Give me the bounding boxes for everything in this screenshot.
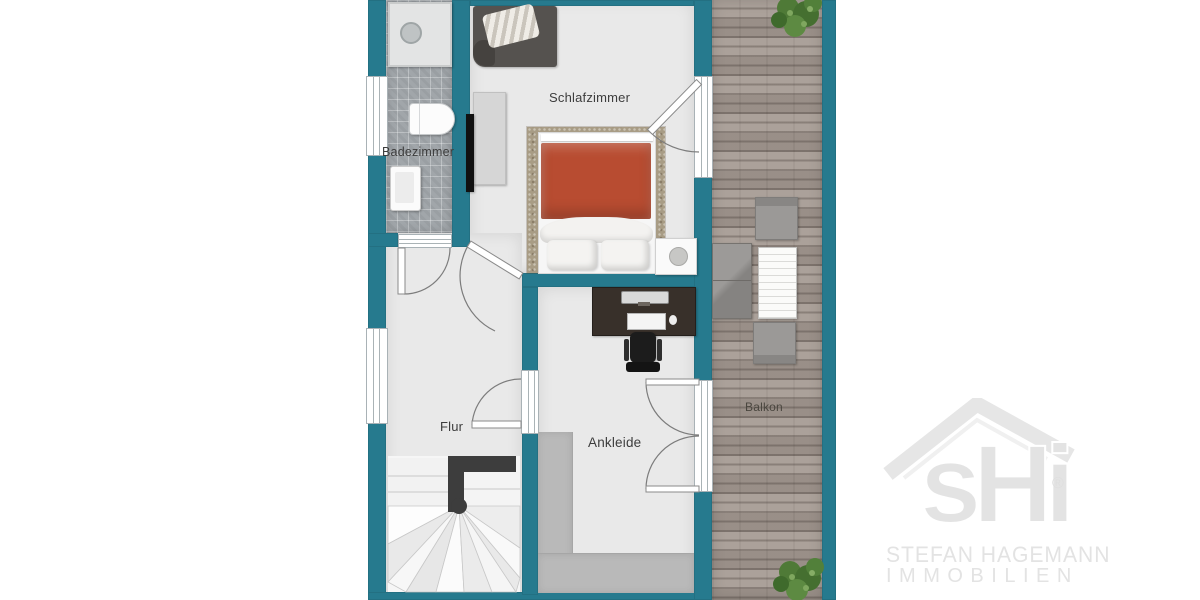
balcony-bench-seam — [713, 280, 751, 281]
window-bathroom — [366, 76, 388, 156]
office-chair-arm-right — [657, 339, 662, 361]
bed-pillow-right — [601, 240, 649, 270]
bed-headboard — [541, 134, 653, 141]
keyboard — [627, 313, 666, 330]
nightstand — [655, 238, 697, 275]
shower-head-icon — [400, 22, 422, 44]
desk — [592, 287, 696, 336]
balcony-bench — [712, 243, 752, 319]
office-chair — [624, 331, 662, 372]
balcony-chair-top-back — [756, 198, 797, 206]
hall-dressing-door-frame — [521, 370, 539, 434]
floor-plan-scene: Schlafzimmer Badezimmer Flur Ankleide Ba… — [0, 0, 1200, 600]
room-label-flur: Flur — [440, 419, 463, 434]
balcony-chair-bottom — [753, 322, 796, 364]
wall-hall-dressing — [522, 287, 538, 595]
dressing-balcony-door-frame — [694, 380, 713, 492]
office-chair-arm-left — [624, 339, 629, 361]
wall-bedroom-bottom — [522, 273, 712, 287]
shower — [388, 2, 452, 67]
realtor-logo-house-icon: sHi ® — [880, 398, 1085, 538]
hall-floor — [386, 233, 522, 595]
logo-registered-icon: ® — [1052, 475, 1064, 492]
wall-exterior-right — [822, 0, 836, 600]
room-label-balkon: Balkon — [745, 400, 783, 414]
bathroom-door-frame — [398, 234, 452, 248]
bed-duvet — [541, 143, 651, 219]
tv — [466, 114, 474, 192]
mouse — [669, 315, 677, 325]
bed-pillow-left — [547, 240, 597, 270]
office-chair-back — [626, 362, 660, 372]
room-label-schlafzimmer: Schlafzimmer — [549, 90, 630, 105]
sink — [390, 166, 421, 211]
monitor-stand — [638, 302, 650, 306]
nightstand-lamp-icon — [669, 247, 688, 266]
balcony-chair-bottom-back — [754, 355, 795, 363]
toilet — [409, 103, 455, 135]
wardrobe-bottom — [538, 553, 694, 593]
office-chair-seat — [630, 332, 656, 363]
bed — [539, 133, 655, 273]
sink-basin — [395, 172, 414, 203]
balcony-table — [758, 247, 797, 319]
balcony-chair-top — [755, 197, 798, 240]
sofa-blanket — [482, 3, 541, 49]
window-hall — [366, 328, 388, 424]
room-label-badezimmer: Badezimmer — [382, 145, 454, 159]
wall-bath-bottom — [368, 233, 398, 247]
dresser — [473, 92, 506, 185]
toilet-tank — [410, 104, 420, 134]
bedroom-balcony-door-frame — [694, 76, 713, 178]
sofa — [473, 6, 557, 67]
wall-bottom — [368, 592, 712, 600]
realtor-logo-line2: IMMOBILIEN — [886, 565, 1079, 588]
room-label-ankleide: Ankleide — [588, 435, 641, 450]
logo-monogram: sHi — [920, 423, 1068, 538]
